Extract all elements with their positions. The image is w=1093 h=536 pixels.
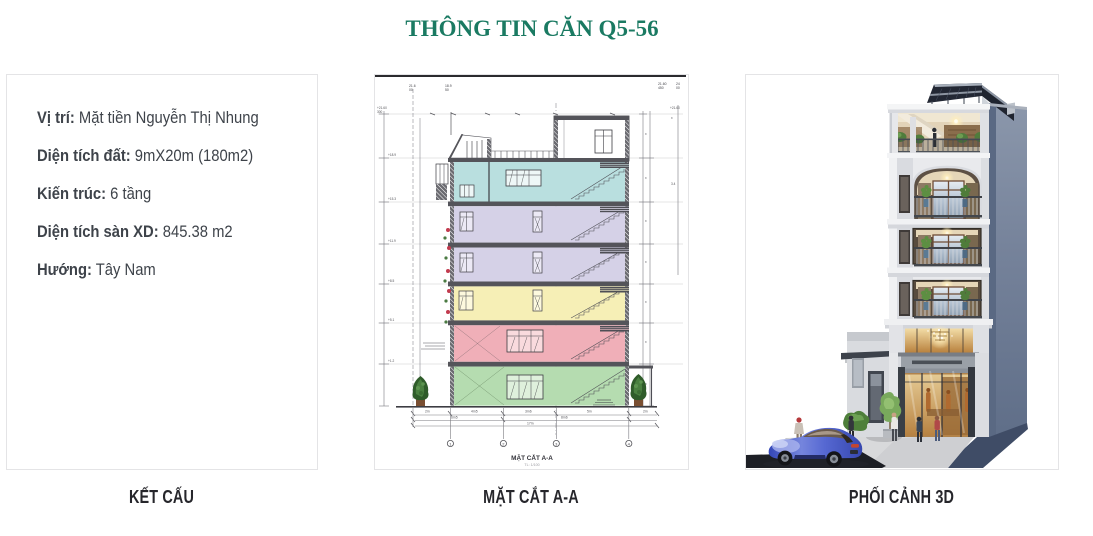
svg-text:450: 450 [658, 86, 664, 90]
svg-text:+8.5: +8.5 [388, 279, 395, 283]
svg-text:+21.60: +21.60 [670, 106, 680, 110]
svg-text:00: 00 [409, 88, 413, 92]
svg-text:2m: 2m [643, 410, 648, 414]
svg-text:50: 50 [445, 88, 449, 92]
svg-text:+11.9: +11.9 [388, 239, 396, 243]
svg-text:17m: 17m [527, 422, 534, 426]
svg-text:+15.3: +15.3 [388, 197, 396, 201]
svg-text:MẶT CẮT A-A: MẶT CẮT A-A [511, 453, 553, 462]
svg-text:+5.1: +5.1 [388, 318, 395, 322]
svg-text:2m: 2m [425, 410, 430, 414]
svg-text:x: x [645, 176, 647, 180]
svg-text:x: x [671, 116, 673, 120]
svg-text:x: x [645, 260, 647, 264]
svg-text:x: x [645, 219, 647, 223]
svg-text:+18.9: +18.9 [388, 153, 396, 157]
svg-text:3.4: 3.4 [671, 182, 676, 186]
svg-text:x: x [645, 132, 647, 136]
svg-text:4m5: 4m5 [471, 410, 478, 414]
svg-text:+1.2: +1.2 [388, 359, 395, 363]
svg-text:5m: 5m [587, 410, 592, 414]
svg-text:300: 300 [377, 110, 383, 114]
svg-text:x: x [645, 340, 647, 344]
svg-text:x: x [645, 300, 647, 304]
svg-text:TL: 1/100: TL: 1/100 [524, 463, 539, 467]
svg-text:3m6: 3m6 [525, 410, 532, 414]
svg-text:8m6: 8m6 [561, 416, 568, 420]
svg-text:6m5: 6m5 [451, 416, 458, 420]
svg-text:00: 00 [676, 86, 680, 90]
